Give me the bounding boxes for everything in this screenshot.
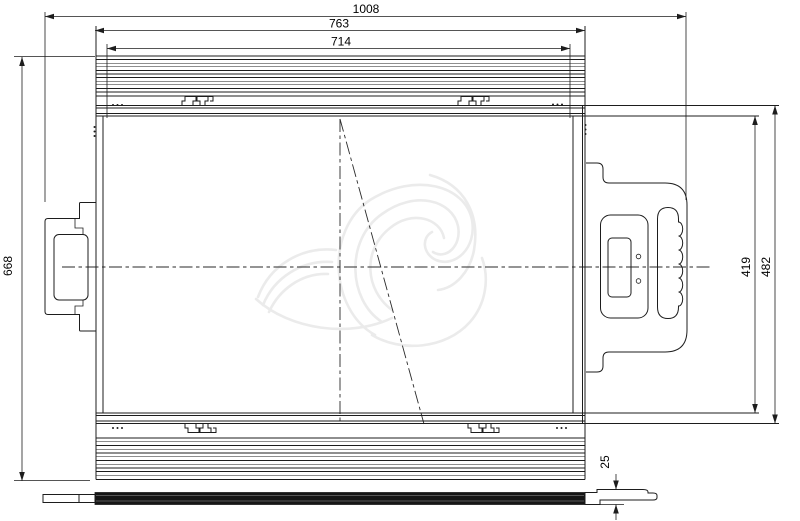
watermark-logo xyxy=(256,175,486,346)
centerlines xyxy=(62,119,710,424)
right-handle xyxy=(586,163,687,372)
dim-label-outer-width: 763 xyxy=(329,17,349,31)
mounting-slots xyxy=(182,97,499,433)
bottom-plate xyxy=(43,490,657,505)
vertical-centerline xyxy=(340,119,424,424)
handle-hole-icon xyxy=(636,279,641,284)
bottom-plate-right-tab xyxy=(585,490,657,505)
dim-label-plate-thickness: 25 xyxy=(598,455,612,469)
bottom-fin-pack xyxy=(96,438,585,480)
technical-drawing: 1008 763 714 668 419 482 xyxy=(0,0,800,521)
t-slot-icon xyxy=(185,424,199,433)
dimension-482: 482 xyxy=(759,106,778,424)
top-fin-pack xyxy=(96,56,585,96)
dimension-763: 763 xyxy=(95,17,585,34)
drawing-canvas: 1008 763 714 668 419 482 xyxy=(0,0,800,521)
dim-label-overall-height: 668 xyxy=(1,256,15,276)
bottom-plate-bar xyxy=(95,493,585,505)
dimension-1008: 1008 xyxy=(45,2,686,202)
t-slot-icon xyxy=(468,424,482,433)
t-slot-icon xyxy=(182,97,196,106)
handle-recess xyxy=(608,238,631,297)
dimension-419: 419 xyxy=(739,116,758,413)
dimension-25: 25 xyxy=(598,455,624,520)
dim-label-flange-height: 482 xyxy=(759,257,773,277)
bottom-plate-left-tab xyxy=(43,495,95,503)
handle-grip-cutout xyxy=(658,208,683,319)
dim-label-overall-width: 1008 xyxy=(353,2,380,16)
handle-hole-icon xyxy=(636,254,641,259)
dim-label-inner-height: 419 xyxy=(739,257,753,277)
dimension-668: 668 xyxy=(1,57,95,482)
t-slot-icon xyxy=(458,97,472,106)
dim-label-fin-width: 714 xyxy=(331,35,351,49)
